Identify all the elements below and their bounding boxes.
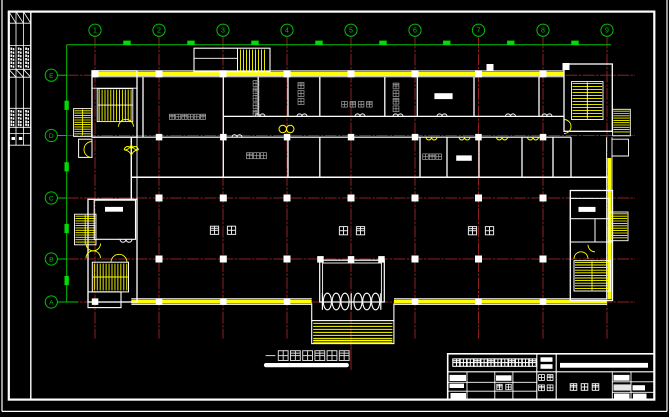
svg-text:3: 3 xyxy=(221,28,225,35)
svg-text:4: 4 xyxy=(285,28,289,35)
svg-text:A: A xyxy=(49,300,54,307)
svg-text:9: 9 xyxy=(605,28,609,35)
svg-text:5: 5 xyxy=(349,28,353,35)
svg-text:1: 1 xyxy=(93,28,97,35)
svg-text:8: 8 xyxy=(541,28,545,35)
svg-text:B: B xyxy=(49,257,54,264)
svg-text:6: 6 xyxy=(413,28,417,35)
svg-text:2: 2 xyxy=(157,28,161,35)
svg-text:D: D xyxy=(49,133,54,140)
svg-text:C: C xyxy=(49,196,54,203)
svg-text:E: E xyxy=(49,73,54,80)
svg-text:7: 7 xyxy=(477,28,481,35)
